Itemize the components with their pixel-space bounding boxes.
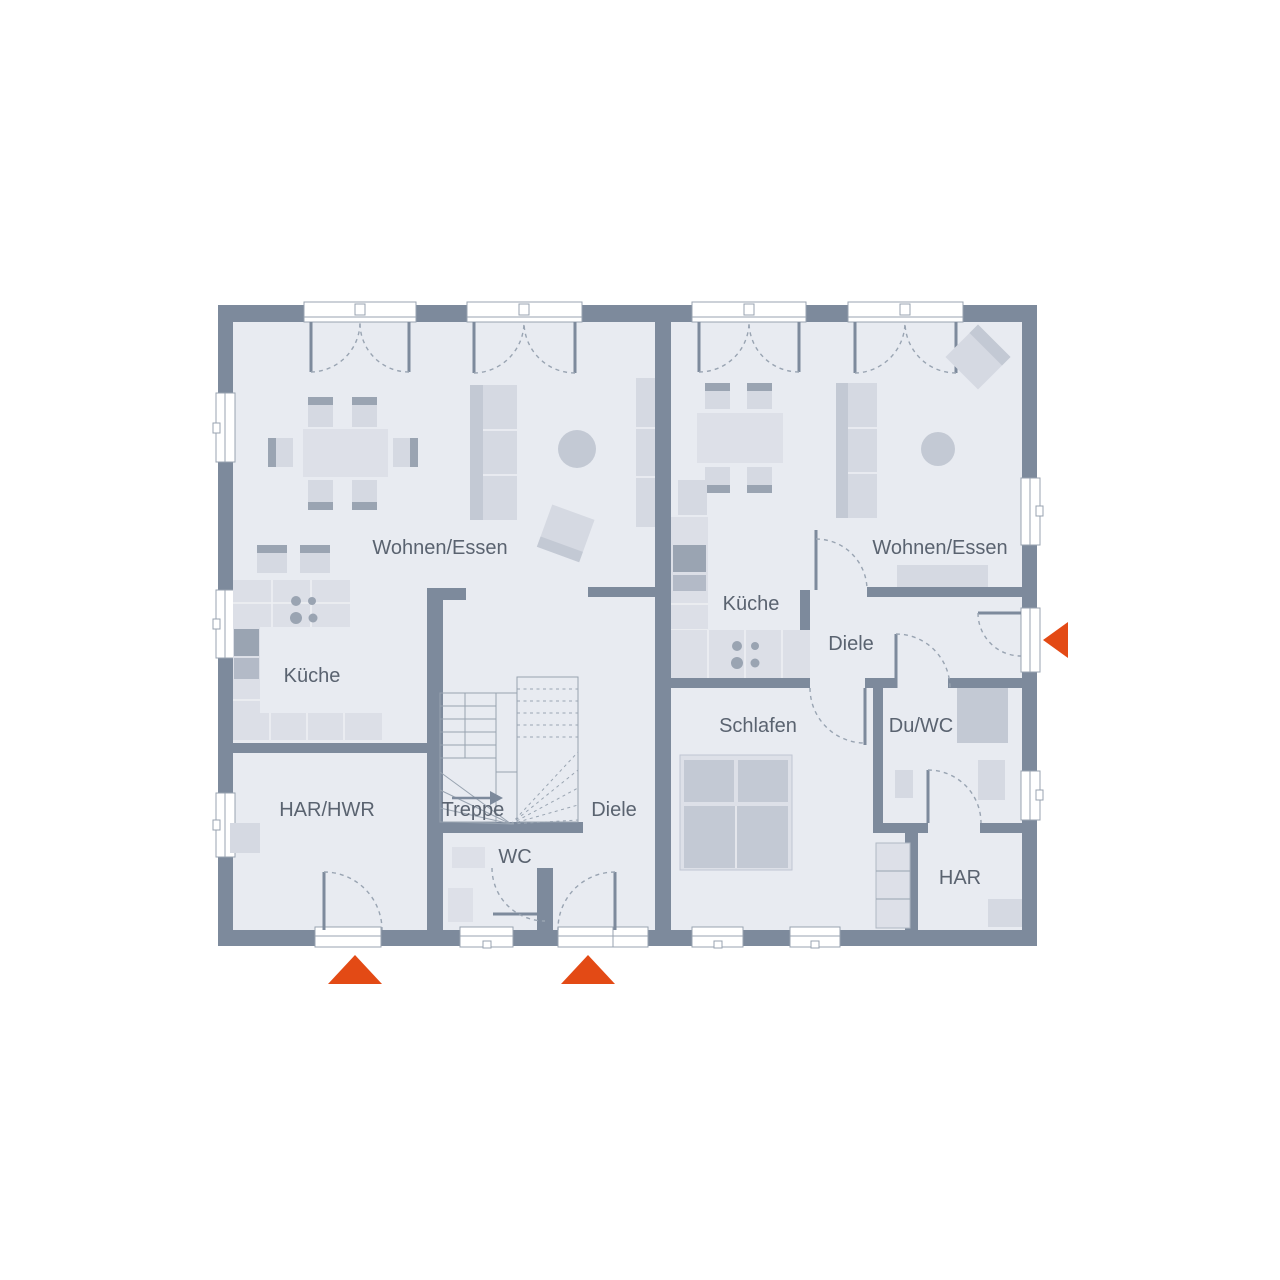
window	[1021, 771, 1043, 820]
mullion-icon	[900, 304, 910, 315]
room-label-har: HAR	[939, 867, 981, 889]
wc-sink	[452, 847, 485, 868]
room-label-wohnen-essen-right: Wohnen/Essen	[872, 537, 1007, 559]
wall-right-duwc-bottom-a	[873, 823, 928, 833]
fridge-icon	[673, 545, 706, 572]
wall-right-duwc-bottom-b	[980, 823, 1022, 833]
room-label-treppe: Treppe	[442, 799, 505, 821]
room-label-schlafen: Schlafen	[719, 715, 797, 737]
wall-party	[655, 305, 671, 946]
entrance-arrow-icon	[561, 955, 615, 984]
window	[1021, 478, 1043, 545]
side-table	[558, 430, 596, 468]
floor-plan-page: Wohnen/Essen Küche HAR/HWR Treppe Diele …	[0, 0, 1280, 1280]
window	[460, 927, 513, 948]
wall-right-kueche-schlafen	[671, 678, 810, 688]
window	[213, 393, 235, 462]
mullion-icon	[519, 304, 529, 315]
hob-icon	[291, 596, 301, 606]
shower	[957, 688, 1008, 743]
wall-right-schlafen-duwc	[873, 688, 883, 823]
mullion-icon	[355, 304, 365, 315]
wc-toilet	[448, 888, 473, 922]
floor-plan-drawing: Wohnen/Essen Küche HAR/HWR Treppe Diele …	[0, 0, 1280, 1280]
oven-icon	[673, 575, 706, 591]
room-label-kueche-left: Küche	[284, 665, 341, 687]
wall-left-stub-l	[427, 588, 466, 600]
wall-left-stub-party	[588, 587, 655, 597]
wall-left-kueche-har	[218, 743, 432, 753]
shelf-unit	[836, 383, 877, 518]
window	[790, 927, 840, 948]
room-label-wc: WC	[498, 846, 531, 868]
entrance-arrow-icon	[328, 955, 382, 984]
fridge-icon	[234, 629, 259, 656]
wall-right-duwc-top-b	[948, 678, 1022, 688]
room-label-diele-left: Diele	[591, 799, 637, 821]
room-label-kueche-right: Küche	[723, 593, 780, 615]
wardrobe	[876, 843, 910, 928]
bed	[680, 755, 792, 870]
sofa	[470, 385, 517, 520]
wall-right-wohnen-diele	[867, 587, 1022, 597]
har-cabinet	[230, 823, 260, 853]
hob-icon	[732, 641, 742, 651]
sideboard	[897, 565, 988, 587]
side-table	[921, 432, 955, 466]
mullion-icon	[744, 304, 754, 315]
wall-right-duwc-top-a	[865, 678, 895, 688]
wall-left-hallway	[427, 588, 443, 930]
toilet	[895, 770, 913, 798]
room-label-du-wc: Du/WC	[889, 715, 953, 737]
sideboard	[636, 378, 655, 527]
window	[213, 590, 235, 658]
bath-sink	[978, 760, 1005, 800]
floors	[233, 322, 1022, 930]
room-label-wohnen-essen-left: Wohnen/Essen	[372, 537, 507, 559]
window	[692, 927, 743, 948]
room-label-har-hwr: HAR/HWR	[279, 799, 375, 821]
oven-icon	[234, 658, 259, 679]
har-cabinet	[988, 899, 1022, 927]
entrance-arrow-icon	[1043, 622, 1068, 658]
room-label-diele-right: Diele	[828, 633, 874, 655]
